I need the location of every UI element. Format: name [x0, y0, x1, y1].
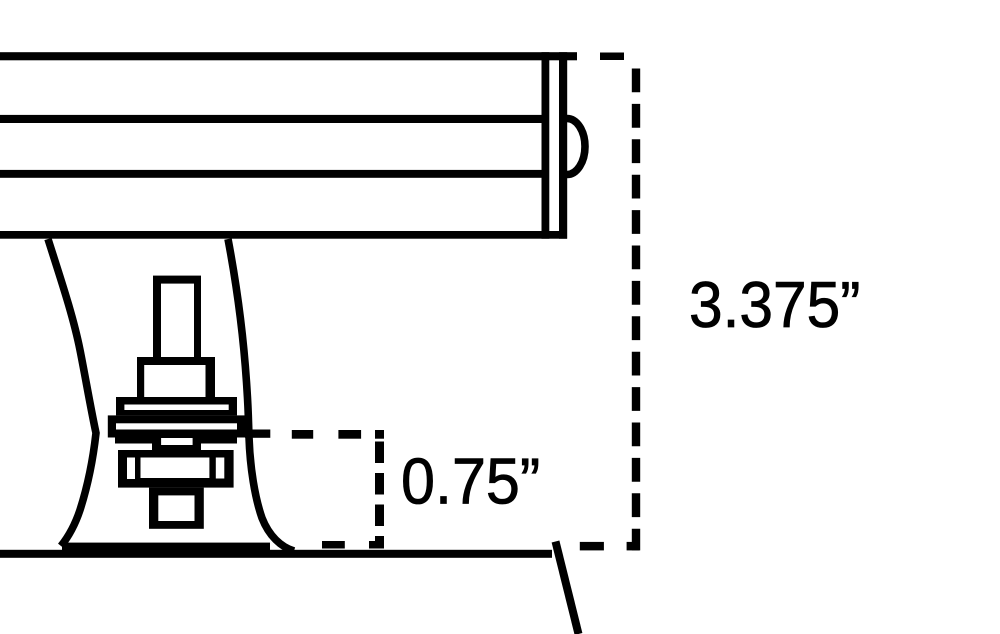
- svg-text:0.75”: 0.75”: [401, 446, 540, 518]
- svg-text:3.375”: 3.375”: [689, 269, 860, 341]
